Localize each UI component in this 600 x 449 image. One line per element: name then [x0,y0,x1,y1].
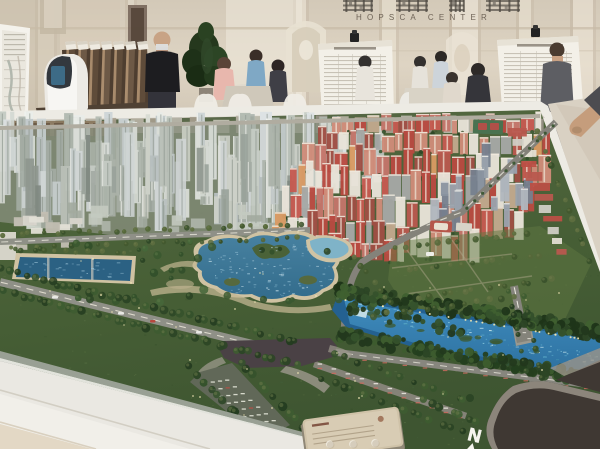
svg-text:HOPSCA CENTER: HOPSCA CENTER [356,13,492,22]
